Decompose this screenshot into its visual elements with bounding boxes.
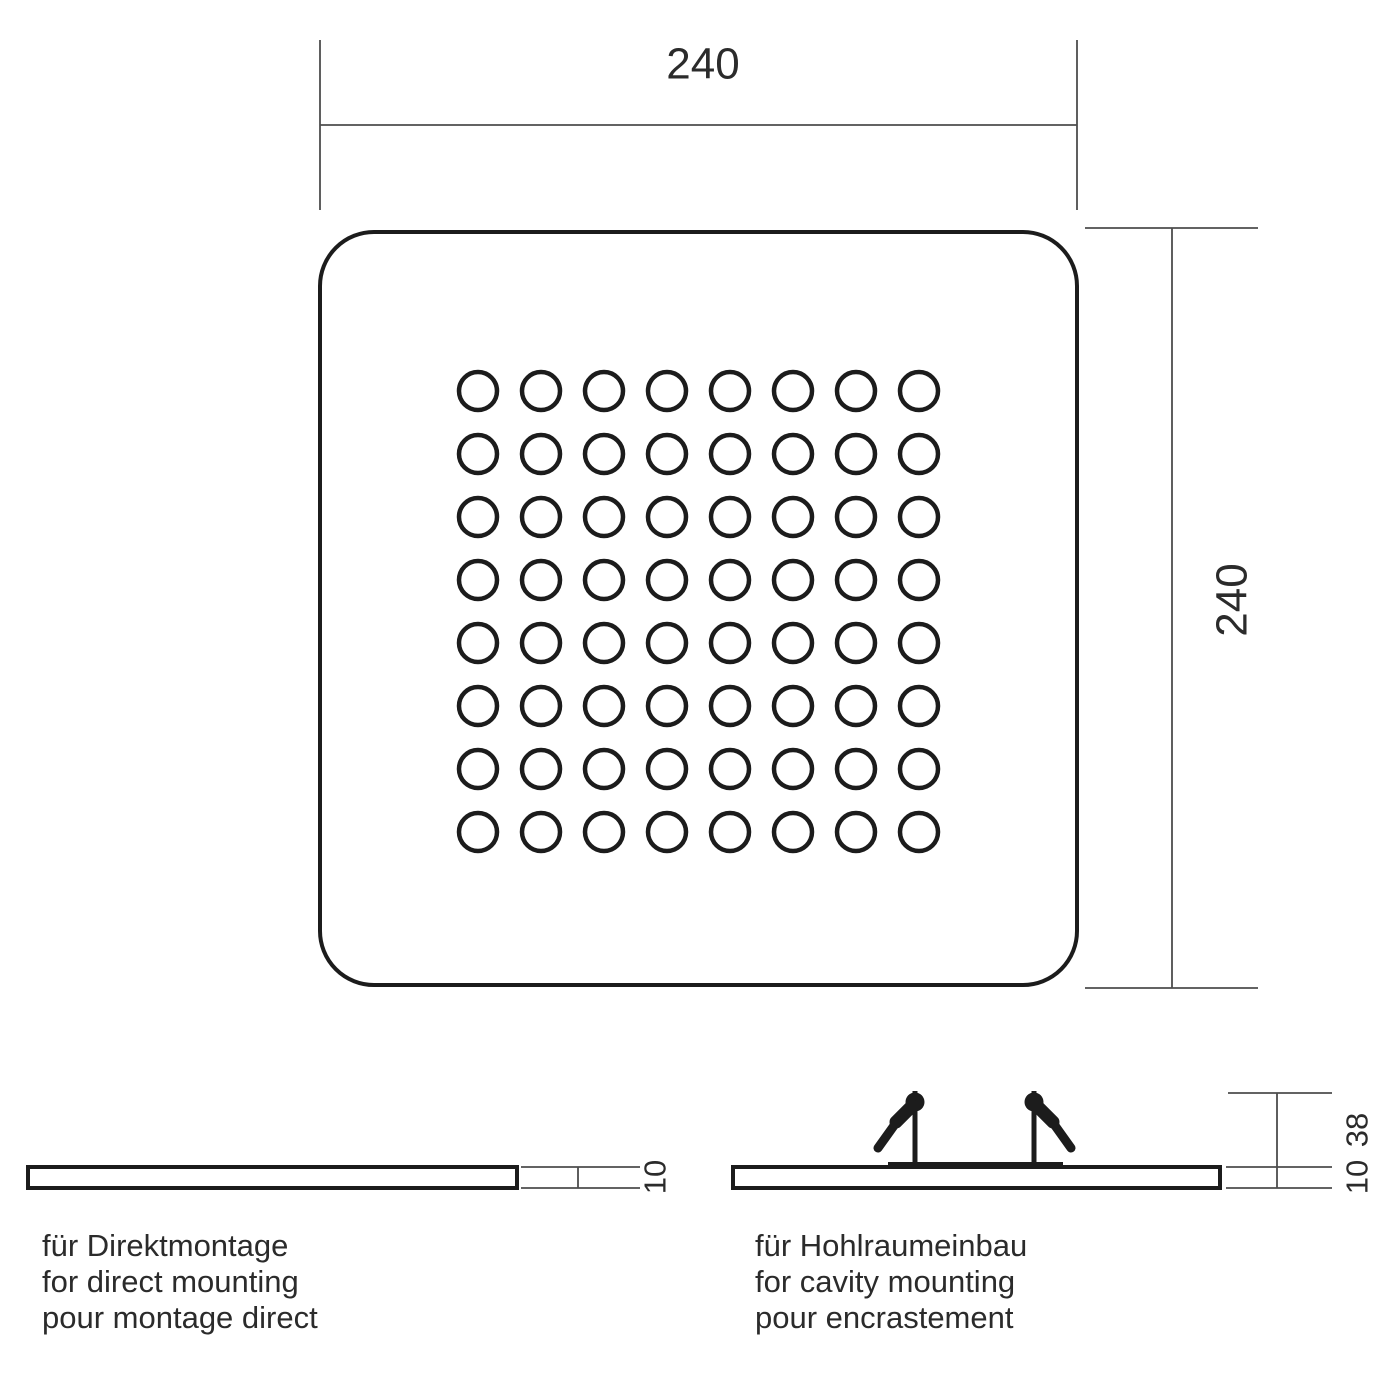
- led-hole: [900, 813, 938, 851]
- height-dim-label: 240: [1208, 563, 1257, 636]
- clip-arm-lower: [878, 1120, 898, 1148]
- panel-side-profile: [733, 1167, 1220, 1188]
- led-hole: [522, 498, 560, 536]
- caption-de: für Direktmontage: [42, 1228, 288, 1263]
- led-hole: [648, 498, 686, 536]
- dimension-drawing: 240 240 10 für Direktmontage: [0, 0, 1400, 1400]
- led-hole: [648, 435, 686, 473]
- led-hole: [774, 750, 812, 788]
- led-hole: [774, 813, 812, 851]
- led-hole: [774, 687, 812, 725]
- led-hole: [585, 561, 623, 599]
- led-hole: [459, 624, 497, 662]
- led-hole: [900, 750, 938, 788]
- led-hole: [900, 372, 938, 410]
- led-hole: [837, 624, 875, 662]
- led-hole: [837, 813, 875, 851]
- cavity-mount-profile: 38 10 für Hohlraumeinbau for cavity moun…: [733, 1091, 1375, 1335]
- spring-clip-right: [1025, 1091, 1072, 1164]
- led-grid: [459, 372, 938, 851]
- led-hole: [711, 372, 749, 410]
- led-hole: [585, 498, 623, 536]
- led-hole: [585, 750, 623, 788]
- led-hole: [522, 750, 560, 788]
- led-hole: [711, 624, 749, 662]
- led-hole: [900, 435, 938, 473]
- clip-height-dim-label: 38: [1340, 1113, 1375, 1147]
- led-hole: [648, 372, 686, 410]
- led-hole: [459, 561, 497, 599]
- led-hole: [900, 561, 938, 599]
- led-hole: [459, 435, 497, 473]
- thickness-dimension: 10: [521, 1160, 673, 1194]
- caption-fr: pour montage direct: [42, 1300, 318, 1335]
- top-width-dimension: 240: [320, 40, 1077, 211]
- led-hole: [459, 750, 497, 788]
- led-hole: [711, 750, 749, 788]
- led-hole: [585, 624, 623, 662]
- led-hole: [585, 813, 623, 851]
- led-hole: [648, 687, 686, 725]
- caption-de: für Hohlraumeinbau: [755, 1228, 1027, 1263]
- led-hole: [648, 561, 686, 599]
- led-hole: [522, 372, 560, 410]
- led-hole: [459, 498, 497, 536]
- led-hole: [837, 435, 875, 473]
- led-hole: [711, 435, 749, 473]
- led-hole: [459, 813, 497, 851]
- led-hole: [774, 435, 812, 473]
- panel-top-view: [320, 232, 1077, 985]
- led-hole: [774, 372, 812, 410]
- led-hole: [837, 372, 875, 410]
- led-hole: [711, 561, 749, 599]
- caption-en: for direct mounting: [42, 1264, 299, 1299]
- led-hole: [522, 624, 560, 662]
- led-hole: [648, 750, 686, 788]
- panel-side-profile: [28, 1167, 517, 1188]
- led-hole: [459, 372, 497, 410]
- led-hole: [837, 687, 875, 725]
- led-hole: [711, 498, 749, 536]
- led-hole: [837, 750, 875, 788]
- panel-outline: [320, 232, 1077, 985]
- direct-mount-profile: 10 für Direktmontage for direct mounting…: [28, 1160, 673, 1335]
- led-hole: [837, 561, 875, 599]
- led-hole: [774, 624, 812, 662]
- caption-fr: pour encrastement: [755, 1300, 1014, 1335]
- led-hole: [711, 687, 749, 725]
- led-hole: [585, 435, 623, 473]
- led-hole: [522, 687, 560, 725]
- led-hole: [585, 687, 623, 725]
- led-hole: [585, 372, 623, 410]
- led-hole: [522, 813, 560, 851]
- led-hole: [900, 498, 938, 536]
- led-hole: [522, 435, 560, 473]
- led-hole: [459, 687, 497, 725]
- cavity-mount-caption: für Hohlraumeinbau for cavity mounting p…: [755, 1228, 1027, 1335]
- right-height-dimension: 240: [1085, 228, 1258, 988]
- led-hole: [900, 687, 938, 725]
- spring-clip-left: [878, 1091, 925, 1164]
- led-hole: [837, 498, 875, 536]
- direct-mount-caption: für Direktmontage for direct mounting po…: [42, 1228, 318, 1335]
- caption-en: for cavity mounting: [755, 1264, 1015, 1299]
- cavity-dimensions: 38 10: [1226, 1093, 1375, 1194]
- thickness-dim-label: 10: [1340, 1160, 1375, 1194]
- led-hole: [774, 498, 812, 536]
- led-hole: [522, 561, 560, 599]
- led-hole: [900, 624, 938, 662]
- thickness-dim-label: 10: [638, 1160, 673, 1194]
- technical-drawing-page: 240 240 10 für Direktmontage: [0, 0, 1400, 1400]
- clip-arm-lower: [1051, 1120, 1071, 1148]
- width-dim-label: 240: [666, 40, 739, 89]
- led-hole: [648, 624, 686, 662]
- led-hole: [711, 813, 749, 851]
- led-hole: [774, 561, 812, 599]
- led-hole: [648, 813, 686, 851]
